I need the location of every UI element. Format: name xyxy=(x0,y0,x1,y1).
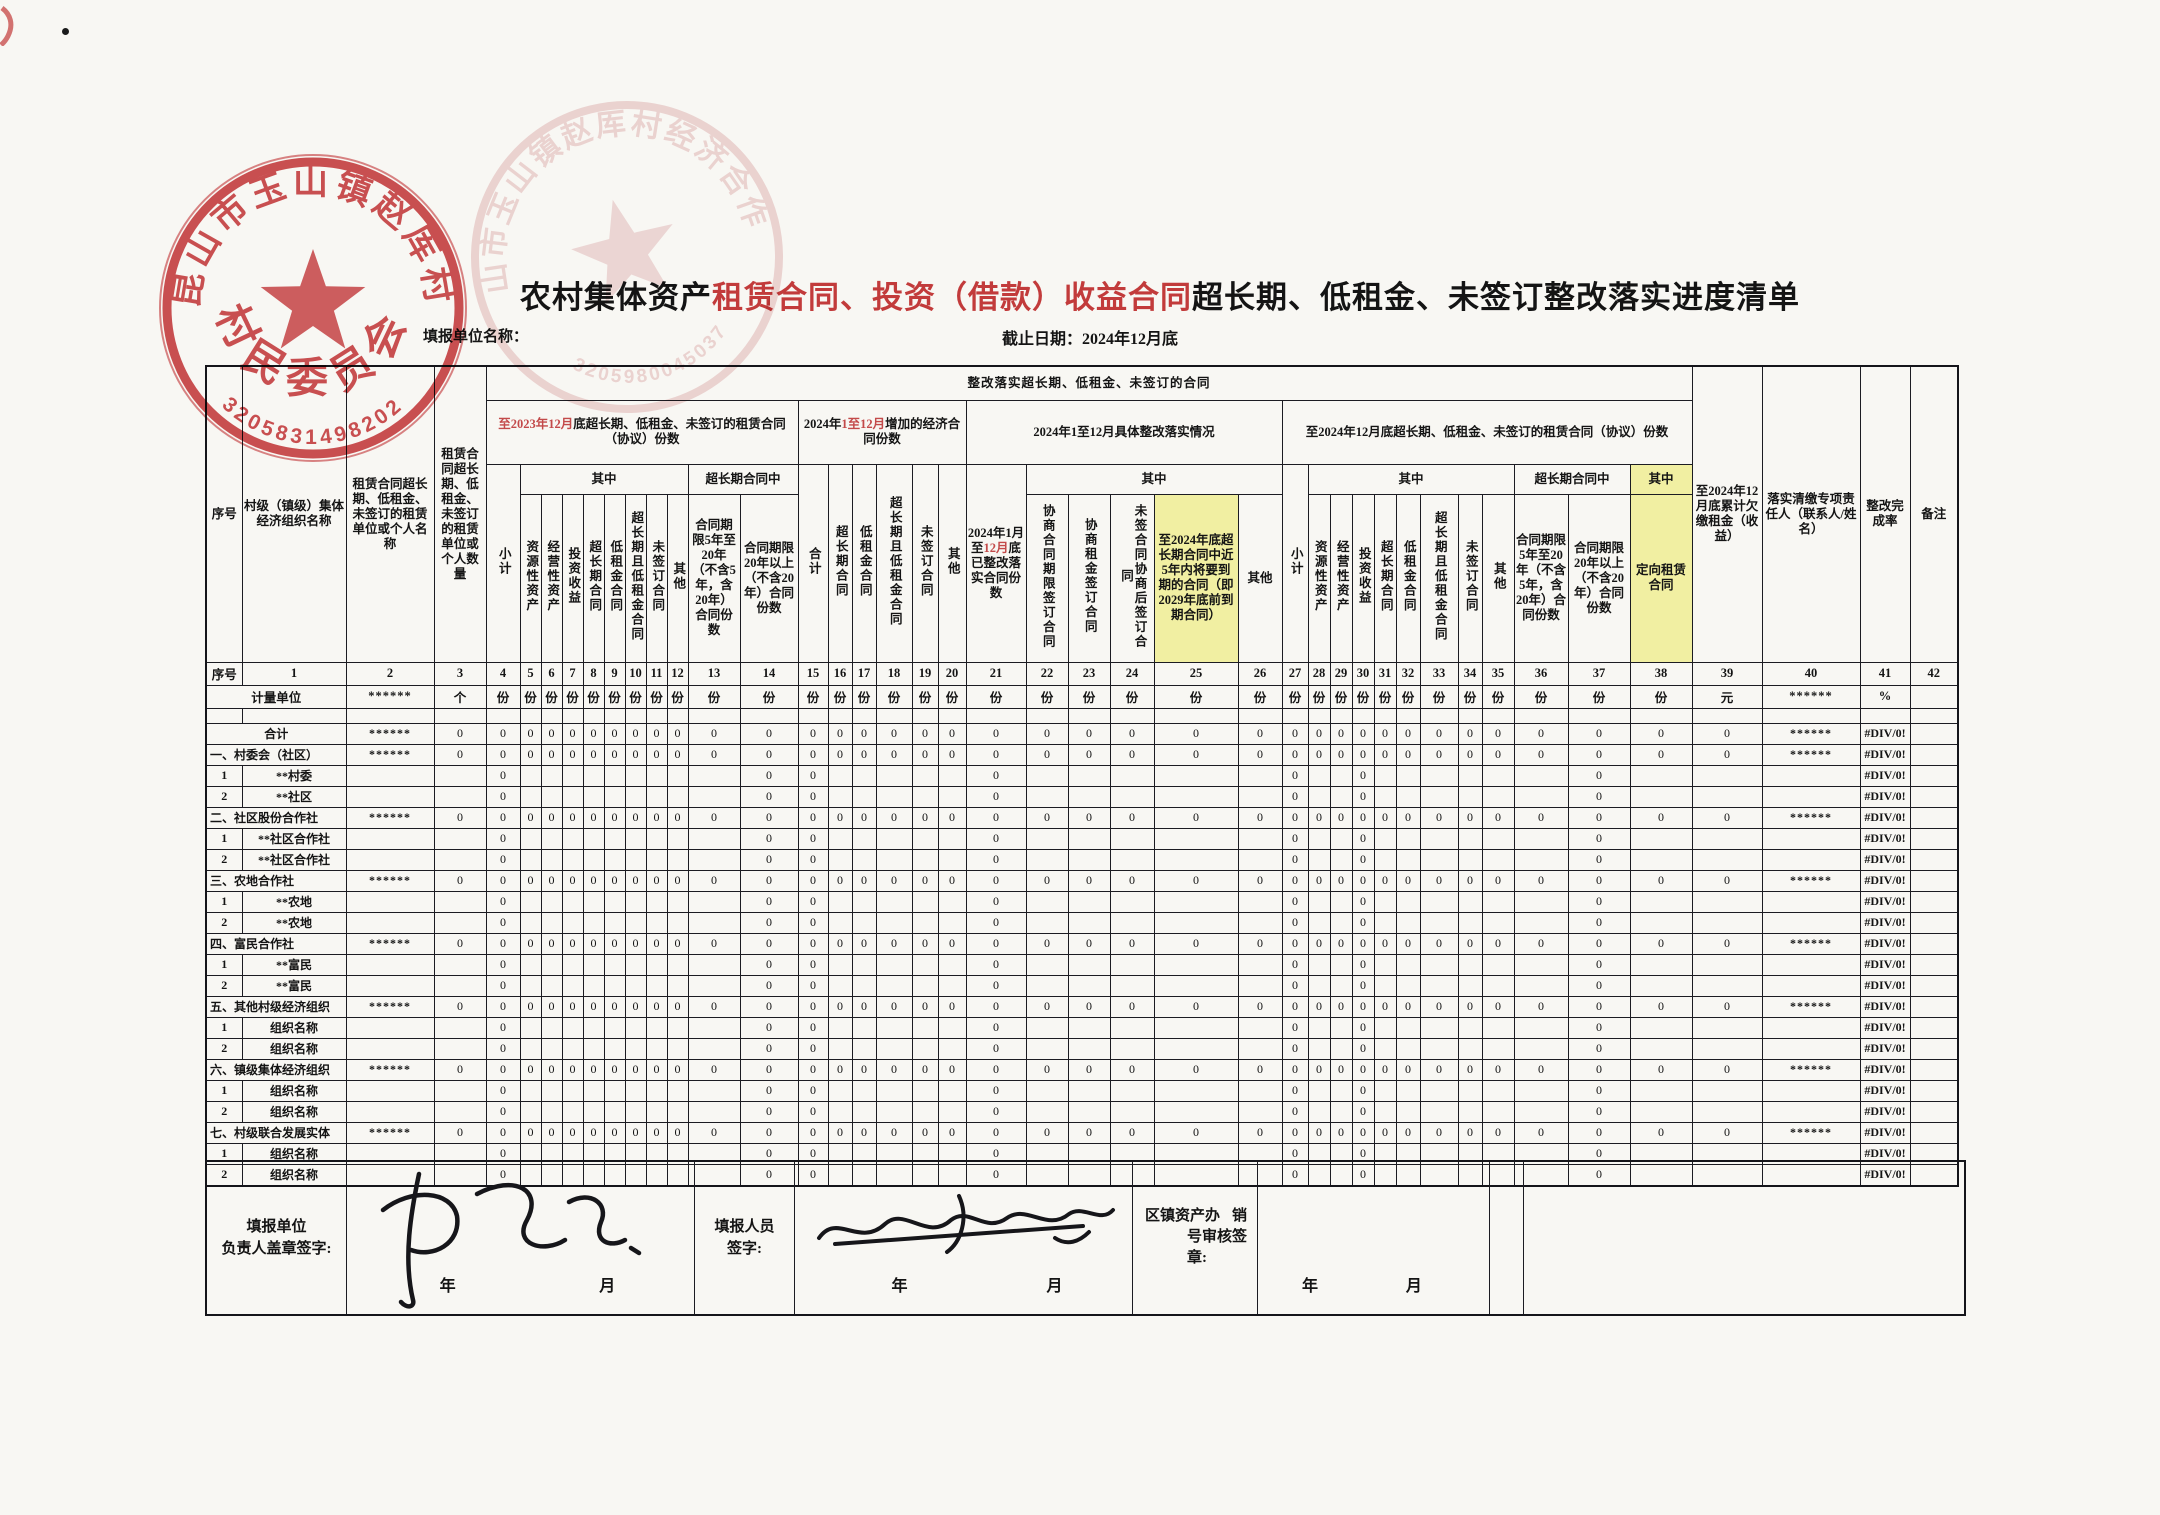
table-cell xyxy=(541,708,562,723)
table-row: 一、村委会（社区）******0000000000000000000000000… xyxy=(206,744,1958,765)
table-cell xyxy=(625,1101,646,1122)
table-cell: #DIV/0! xyxy=(1860,1059,1910,1080)
table-cell: 0 xyxy=(740,1080,798,1101)
table-row: 三、农地合作社******000000000000000000000000000… xyxy=(206,870,1958,891)
unit-head-date: 年 月 xyxy=(347,1272,694,1296)
table-cell: #DIV/0! xyxy=(1860,723,1910,744)
table-cell: 0 xyxy=(1374,933,1396,954)
table-cell xyxy=(688,1101,740,1122)
table-cell: ****** xyxy=(1762,1059,1860,1080)
table-cell xyxy=(852,849,876,870)
table-cell: 份 xyxy=(1630,685,1692,708)
table-cell: 0 xyxy=(604,996,625,1017)
table-cell xyxy=(876,849,912,870)
table-cell xyxy=(667,708,688,723)
narrow-spacer-cell xyxy=(1490,1162,1524,1314)
table-cell: 份 xyxy=(912,685,938,708)
table-cell: 0 xyxy=(646,723,667,744)
table-cell xyxy=(1910,786,1958,807)
table-cell: 0 xyxy=(828,723,852,744)
table-cell: 0 xyxy=(966,933,1026,954)
table-cell xyxy=(1154,1080,1238,1101)
table-cell: 0 xyxy=(852,723,876,744)
table-cell xyxy=(1762,891,1860,912)
table-cell: 0 xyxy=(740,786,798,807)
table-cell: 0 xyxy=(828,807,852,828)
header-col29: 经营性资产 xyxy=(1330,494,1352,662)
table-cell xyxy=(1068,954,1110,975)
table-cell: 0 xyxy=(1154,933,1238,954)
table-cell: 0 xyxy=(1352,723,1374,744)
table-cell: 份 xyxy=(1482,685,1514,708)
table-cell: 0 xyxy=(434,1059,486,1080)
header-g2-both: 超长期且低租金合同 xyxy=(876,464,912,662)
table-cell: 份 xyxy=(486,685,520,708)
table-cell: 0 xyxy=(434,996,486,1017)
header-g2-overlong: 超长期合同 xyxy=(828,464,852,662)
table-cell: 0 xyxy=(1282,765,1308,786)
table-cell: 0 xyxy=(667,807,688,828)
table-cell: 份 xyxy=(646,685,667,708)
table-cell xyxy=(1630,891,1692,912)
table-cell: 29 xyxy=(1330,662,1352,685)
table-cell: 0 xyxy=(966,849,1026,870)
table-cell xyxy=(1514,912,1568,933)
table-cell: 0 xyxy=(1308,807,1330,828)
table-cell xyxy=(1308,1017,1330,1038)
table-cell: 35 xyxy=(1482,662,1514,685)
table-cell: 0 xyxy=(1282,1038,1308,1059)
table-cell: 0 xyxy=(688,870,740,891)
header-rectified-count: 2024年1月至12月底已整改落实合同份数 xyxy=(966,464,1026,662)
header-col10: 超长期且低租金合同 xyxy=(625,494,646,662)
table-cell: 0 xyxy=(876,744,912,765)
table-cell: 0 xyxy=(1110,723,1154,744)
table-cell xyxy=(1630,1038,1692,1059)
table-cell: 0 xyxy=(667,933,688,954)
table-cell: #DIV/0! xyxy=(1860,1122,1910,1143)
table-cell: 0 xyxy=(912,744,938,765)
empty-end-cell xyxy=(1524,1162,1964,1314)
table-cell: 0 xyxy=(1420,807,1458,828)
table-cell: 0 xyxy=(1514,996,1568,1017)
table-cell: 0 xyxy=(1110,744,1154,765)
table-cell: 3 xyxy=(434,662,486,685)
table-cell: 11 xyxy=(646,662,667,685)
table-cell: 0 xyxy=(1374,807,1396,828)
table-cell: 份 xyxy=(1352,685,1374,708)
year-label: 年 xyxy=(347,1272,548,1296)
table-cell: #DIV/0! xyxy=(1860,933,1910,954)
table-cell xyxy=(938,954,966,975)
table-cell xyxy=(852,708,876,723)
table-cell: 0 xyxy=(966,912,1026,933)
table-cell: 4 xyxy=(486,662,520,685)
header-completion-rate: 整改完成率 xyxy=(1860,366,1910,662)
table-cell xyxy=(1420,828,1458,849)
table-cell xyxy=(828,954,852,975)
table-cell: 0 xyxy=(434,723,486,744)
table-cell xyxy=(1692,765,1762,786)
table-cell: **农地 xyxy=(242,891,346,912)
table-cell: 0 xyxy=(625,1059,646,1080)
table-cell xyxy=(1396,828,1420,849)
table-cell xyxy=(1482,708,1514,723)
table-cell: 0 xyxy=(1282,1101,1308,1122)
table-cell: 0 xyxy=(876,1059,912,1080)
table-cell xyxy=(604,786,625,807)
table-cell: 0 xyxy=(1110,1122,1154,1143)
table-cell: 0 xyxy=(1374,1059,1396,1080)
table-cell: 0 xyxy=(1282,954,1308,975)
table-cell xyxy=(646,954,667,975)
table-cell xyxy=(583,1017,604,1038)
table-cell xyxy=(876,975,912,996)
table-cell xyxy=(1110,954,1154,975)
table-cell xyxy=(604,1017,625,1038)
table-cell: 0 xyxy=(1330,1059,1352,1080)
table-cell: 1 xyxy=(206,954,242,975)
table-row: 2**社区0000000#DIV/0! xyxy=(206,786,1958,807)
table-cell: 0 xyxy=(1068,744,1110,765)
table-cell: 0 xyxy=(876,723,912,744)
table-cell xyxy=(1110,1080,1154,1101)
header-col33: 超长期且低租金合同 xyxy=(1420,494,1458,662)
table-cell: 0 xyxy=(1692,996,1762,1017)
table-cell: 0 xyxy=(798,849,828,870)
table-cell: 0 xyxy=(1568,1122,1630,1143)
table-cell: 0 xyxy=(1692,933,1762,954)
table-cell xyxy=(912,708,938,723)
table-cell xyxy=(520,975,541,996)
table-cell xyxy=(876,828,912,849)
asset-office-line2: 号审核签章: xyxy=(1145,1225,1247,1267)
table-cell xyxy=(541,786,562,807)
table-cell: 三、农地合作社 xyxy=(206,870,346,891)
table-cell xyxy=(346,954,434,975)
table-cell: 0 xyxy=(1568,1101,1630,1122)
table-cell xyxy=(1308,849,1330,870)
table-cell: 38 xyxy=(1630,662,1692,685)
table-cell: 0 xyxy=(1282,1059,1308,1080)
table-cell xyxy=(625,765,646,786)
table-cell xyxy=(434,1038,486,1059)
table-cell xyxy=(1068,1038,1110,1059)
table-cell xyxy=(1330,708,1352,723)
table-cell: 0 xyxy=(667,870,688,891)
table-cell xyxy=(604,828,625,849)
table-cell xyxy=(688,975,740,996)
table-cell: 0 xyxy=(1568,1059,1630,1080)
table-cell xyxy=(1458,708,1482,723)
group2-red: 1至12月 xyxy=(841,417,885,431)
table-cell: 0 xyxy=(852,744,876,765)
table-cell xyxy=(346,912,434,933)
table-cell: 0 xyxy=(688,933,740,954)
table-cell xyxy=(1068,708,1110,723)
table-cell: 0 xyxy=(798,975,828,996)
table-cell xyxy=(1860,708,1910,723)
table-cell: 0 xyxy=(434,744,486,765)
table-cell xyxy=(1154,975,1238,996)
table-cell: 份 xyxy=(876,685,912,708)
table-cell: 0 xyxy=(1308,744,1330,765)
table-cell: 0 xyxy=(1630,744,1692,765)
table-cell: ****** xyxy=(346,870,434,891)
table-cell xyxy=(1910,1038,1958,1059)
table-cell: 0 xyxy=(1514,723,1568,744)
filler-date: 年 月 xyxy=(795,1272,1132,1296)
table-cell xyxy=(625,891,646,912)
table-cell: 2 xyxy=(346,662,434,685)
table-cell xyxy=(966,708,1026,723)
table-cell xyxy=(688,1017,740,1038)
header-col11: 未签订合同 xyxy=(646,494,667,662)
filler-signature-cell: 年 月 xyxy=(795,1162,1133,1314)
table-cell: 份 xyxy=(520,685,541,708)
table-cell xyxy=(1154,1017,1238,1038)
table-cell xyxy=(646,828,667,849)
table-cell: **社区 xyxy=(242,786,346,807)
table-cell: ****** xyxy=(1762,933,1860,954)
table-cell xyxy=(1068,765,1110,786)
table-cell: 28 xyxy=(1308,662,1330,685)
table-cell: 份 xyxy=(1396,685,1420,708)
table-cell: 0 xyxy=(912,996,938,1017)
table-cell: 0 xyxy=(1330,870,1352,891)
table-cell xyxy=(1068,975,1110,996)
table-cell xyxy=(828,1017,852,1038)
table-cell xyxy=(1514,1017,1568,1038)
table-cell xyxy=(1420,1101,1458,1122)
table-cell: ****** xyxy=(346,996,434,1017)
table-cell: 0 xyxy=(688,723,740,744)
table-cell: 组织名称 xyxy=(242,1038,346,1059)
table-cell: 0 xyxy=(1568,870,1630,891)
table-cell xyxy=(1910,954,1958,975)
table-cell xyxy=(434,954,486,975)
table-cell xyxy=(1420,975,1458,996)
table-cell xyxy=(1762,765,1860,786)
table-cell: 0 xyxy=(1482,933,1514,954)
table-cell xyxy=(1238,1038,1282,1059)
table-cell xyxy=(1330,786,1352,807)
table-cell: 0 xyxy=(541,723,562,744)
table-cell: 0 xyxy=(1238,723,1282,744)
table-cell xyxy=(604,1080,625,1101)
table-cell xyxy=(828,708,852,723)
table-cell: 0 xyxy=(1068,723,1110,744)
table-cell: ****** xyxy=(1762,870,1860,891)
table-cell xyxy=(688,828,740,849)
table-cell xyxy=(1308,891,1330,912)
table-cell xyxy=(876,1017,912,1038)
table-cell: 0 xyxy=(1568,744,1630,765)
table-cell xyxy=(1458,828,1482,849)
table-cell xyxy=(520,828,541,849)
table-cell: 0 xyxy=(562,1122,583,1143)
table-cell: 份 xyxy=(966,685,1026,708)
table-cell xyxy=(541,1080,562,1101)
table-cell xyxy=(1374,828,1396,849)
table-cell: 0 xyxy=(667,723,688,744)
table-cell xyxy=(667,954,688,975)
table-cell: 0 xyxy=(688,1059,740,1080)
table-cell: 0 xyxy=(798,1038,828,1059)
table-cell: 份 xyxy=(583,685,604,708)
table-cell: 0 xyxy=(486,828,520,849)
table-cell: 0 xyxy=(1238,996,1282,1017)
table-cell xyxy=(1420,708,1458,723)
table-cell xyxy=(667,765,688,786)
table-cell: 0 xyxy=(1308,1122,1330,1143)
table-cell: 0 xyxy=(1630,870,1692,891)
table-cell xyxy=(852,954,876,975)
table-cell xyxy=(688,849,740,870)
table-cell xyxy=(1374,849,1396,870)
header-col13: 合同期限5年至20年（不含5年，含20年）合同份数 xyxy=(688,494,740,662)
table-cell: 0 xyxy=(740,1059,798,1080)
table-cell xyxy=(646,891,667,912)
table-cell xyxy=(938,912,966,933)
table-cell xyxy=(625,1038,646,1059)
header-col38-directional: 定向租赁合同 xyxy=(1630,494,1692,662)
table-cell xyxy=(486,708,520,723)
table-cell: 0 xyxy=(434,933,486,954)
table-cell xyxy=(667,1101,688,1122)
table-cell xyxy=(1026,891,1068,912)
table-cell: 0 xyxy=(1352,912,1374,933)
table-cell xyxy=(938,1101,966,1122)
table-cell xyxy=(828,1038,852,1059)
table-cell: #DIV/0! xyxy=(1860,954,1910,975)
table-cell: 0 xyxy=(1352,933,1374,954)
table-cell xyxy=(1910,1122,1958,1143)
table-cell: ****** xyxy=(346,744,434,765)
table-cell xyxy=(520,1038,541,1059)
table-cell: 0 xyxy=(852,807,876,828)
table-cell xyxy=(604,708,625,723)
unit-head-signature-cell: 年 月 xyxy=(347,1162,695,1314)
table-cell xyxy=(1374,1080,1396,1101)
table-cell: 0 xyxy=(1458,723,1482,744)
table-cell xyxy=(1308,1101,1330,1122)
table-cell: ****** xyxy=(1762,744,1860,765)
table-cell xyxy=(1514,786,1568,807)
table-cell: 0 xyxy=(1630,996,1692,1017)
table-cell: 0 xyxy=(583,933,604,954)
table-cell: #DIV/0! xyxy=(1860,807,1910,828)
table-cell: 0 xyxy=(604,1122,625,1143)
table-cell xyxy=(1154,1038,1238,1059)
table-cell: 0 xyxy=(1396,723,1420,744)
table-cell xyxy=(1110,912,1154,933)
filler-sign-label: 填报人员 签字: xyxy=(695,1162,795,1314)
table-cell: 0 xyxy=(798,1017,828,1038)
table-cell: 0 xyxy=(1352,807,1374,828)
table-cell xyxy=(876,708,912,723)
header-lessee-name: 租赁合同超长期、低租金、未签订的租赁单位或个人名称 xyxy=(346,366,434,662)
table-cell xyxy=(541,1038,562,1059)
table-cell: 份 xyxy=(1154,685,1238,708)
table-cell xyxy=(912,1101,938,1122)
table-cell: 0 xyxy=(541,744,562,765)
table-cell xyxy=(1154,786,1238,807)
header-col23: 协商租金签订合同 xyxy=(1068,494,1110,662)
table-cell: 0 xyxy=(1482,1059,1514,1080)
table-cell: 2 xyxy=(206,1101,242,1122)
table-cell xyxy=(1420,849,1458,870)
table-cell xyxy=(1396,786,1420,807)
table-cell xyxy=(938,828,966,849)
table-cell xyxy=(1026,1080,1068,1101)
table-cell xyxy=(828,786,852,807)
table-cell: 份 xyxy=(667,685,688,708)
table-cell: 六、镇级集体经济组织 xyxy=(206,1059,346,1080)
table-cell xyxy=(1692,954,1762,975)
table-cell: 0 xyxy=(583,996,604,1017)
table-cell xyxy=(1330,765,1352,786)
header-overlong-mid-1: 超长期合同中 xyxy=(688,464,798,494)
table-cell: 0 xyxy=(1352,996,1374,1017)
table-cell xyxy=(1630,912,1692,933)
table-cell xyxy=(1110,975,1154,996)
table-cell: 0 xyxy=(562,1059,583,1080)
month-label: 月 xyxy=(1004,1272,1105,1296)
table-cell xyxy=(346,1080,434,1101)
table-cell xyxy=(346,1038,434,1059)
table-cell: 0 xyxy=(912,933,938,954)
table-cell: 四、富民合作社 xyxy=(206,933,346,954)
table-cell: 0 xyxy=(1568,765,1630,786)
table-cell xyxy=(1026,954,1068,975)
table-cell: 0 xyxy=(938,807,966,828)
group1-rest: 底超长期、低租金、未签订的租赁合同（协议）份数 xyxy=(573,417,786,446)
table-cell xyxy=(740,708,798,723)
table-cell: 0 xyxy=(798,1122,828,1143)
table-cell xyxy=(242,708,346,723)
table-cell xyxy=(938,849,966,870)
table-cell xyxy=(1330,1017,1352,1038)
table-cell: 0 xyxy=(646,744,667,765)
table-cell: 0 xyxy=(1458,807,1482,828)
table-cell: 0 xyxy=(1026,870,1068,891)
table-cell: 0 xyxy=(688,807,740,828)
table-row: 1组织名称0000000#DIV/0! xyxy=(206,1017,1958,1038)
table-cell: 30 xyxy=(1352,662,1374,685)
group-2024-new-contracts: 2024年1至12月增加的经济合同份数 xyxy=(798,400,966,464)
table-cell: 份 xyxy=(1330,685,1352,708)
table-cell: 0 xyxy=(740,744,798,765)
table-cell: % xyxy=(1860,685,1910,708)
table-cell: 18 xyxy=(876,662,912,685)
table-cell: 0 xyxy=(938,870,966,891)
table-cell xyxy=(938,975,966,996)
table-cell xyxy=(1910,912,1958,933)
table-cell xyxy=(1762,1101,1860,1122)
table-cell xyxy=(646,1017,667,1038)
scan-dot-artifact xyxy=(62,28,69,35)
table-cell: 0 xyxy=(1458,1122,1482,1143)
table-row: 1**农地0000000#DIV/0! xyxy=(206,891,1958,912)
header-col34: 未签订合同 xyxy=(1458,494,1482,662)
table-cell: 1 xyxy=(206,1080,242,1101)
table-cell xyxy=(562,828,583,849)
table-cell xyxy=(583,954,604,975)
reporting-unit-sign-label: 填报单位 负责人盖章签字: xyxy=(207,1162,347,1314)
table-cell: 0 xyxy=(938,744,966,765)
table-cell xyxy=(346,891,434,912)
